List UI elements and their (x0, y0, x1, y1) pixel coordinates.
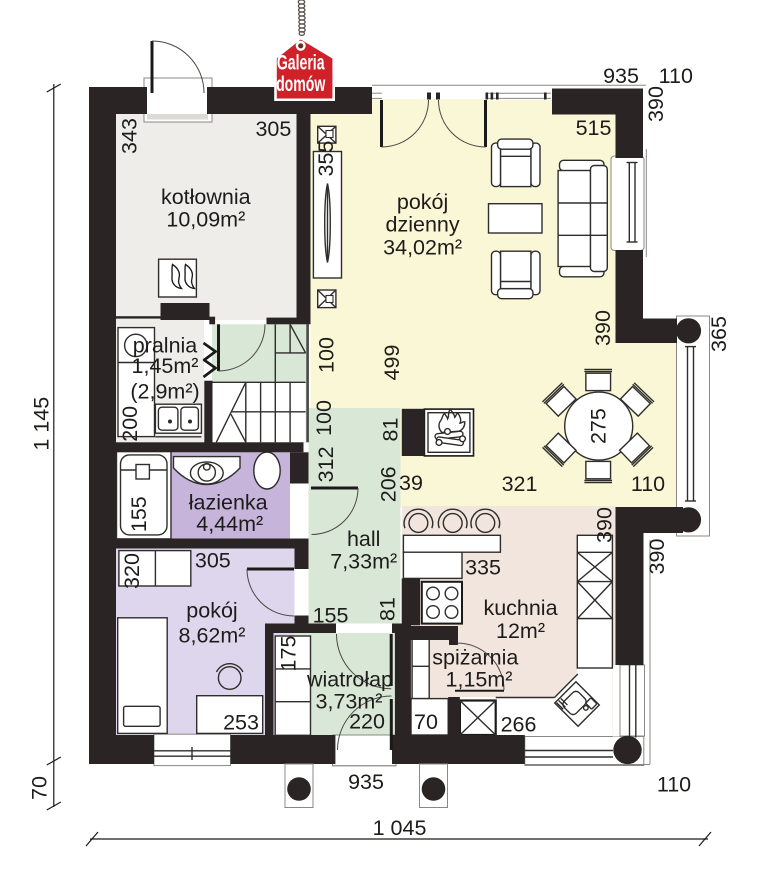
svg-text:34,02m²: 34,02m² (383, 236, 462, 260)
svg-text:312: 312 (314, 446, 338, 482)
svg-text:4,44m²: 4,44m² (196, 512, 263, 536)
svg-text:70: 70 (414, 710, 438, 734)
svg-text:hall: hall (347, 527, 380, 551)
svg-text:10,09m²: 10,09m² (166, 208, 245, 232)
svg-text:spiżarnia: spiżarnia (432, 646, 518, 670)
svg-text:343: 343 (118, 118, 142, 154)
svg-text:275: 275 (587, 408, 611, 444)
svg-text:81: 81 (376, 597, 400, 621)
svg-text:390: 390 (645, 539, 669, 575)
svg-text:dzienny: dzienny (386, 213, 460, 237)
svg-text:1 145: 1 145 (30, 397, 54, 451)
svg-text:499: 499 (380, 345, 404, 381)
svg-text:Galeria: Galeria (277, 51, 326, 74)
svg-text:320: 320 (120, 553, 144, 589)
svg-text:206: 206 (376, 466, 400, 502)
svg-text:110: 110 (659, 64, 693, 88)
svg-text:wiatrołap: wiatrołap (306, 668, 393, 692)
svg-text:935: 935 (603, 64, 639, 88)
svg-text:110: 110 (657, 773, 691, 797)
svg-text:321: 321 (502, 472, 538, 496)
svg-text:70: 70 (28, 776, 52, 800)
svg-text:domów: domów (276, 72, 325, 95)
svg-text:266: 266 (501, 712, 537, 736)
svg-text:175: 175 (277, 636, 301, 672)
svg-text:12m²: 12m² (496, 619, 545, 643)
svg-text:8,62m²: 8,62m² (179, 624, 246, 648)
svg-text:365: 365 (707, 316, 731, 352)
svg-text:7,33m²: 7,33m² (330, 550, 397, 574)
svg-text:81: 81 (379, 418, 403, 442)
svg-text:200: 200 (118, 406, 142, 442)
svg-text:110: 110 (631, 472, 665, 496)
svg-text:pokój: pokój (186, 599, 237, 623)
svg-text:łazienka: łazienka (189, 491, 268, 515)
svg-text:305: 305 (195, 549, 231, 573)
svg-text:355: 355 (314, 141, 338, 177)
svg-text:253: 253 (223, 710, 259, 734)
svg-text:kuchnia: kuchnia (483, 596, 557, 620)
svg-text:1 045: 1 045 (373, 816, 427, 840)
svg-text:305: 305 (255, 117, 291, 141)
svg-text:155: 155 (127, 496, 151, 532)
svg-text:kotłownia: kotłownia (161, 185, 251, 209)
svg-text:390: 390 (591, 310, 615, 346)
svg-text:100: 100 (312, 400, 336, 436)
svg-text:(2,9m²): (2,9m²) (130, 380, 199, 404)
svg-text:220: 220 (349, 710, 385, 734)
svg-text:39: 39 (399, 471, 423, 495)
svg-text:1,45m²: 1,45m² (132, 354, 199, 378)
svg-text:335: 335 (465, 556, 501, 580)
svg-text:935: 935 (348, 770, 384, 794)
svg-text:515: 515 (576, 116, 612, 140)
svg-text:pokój: pokój (397, 190, 448, 214)
svg-text:1,15m²: 1,15m² (446, 667, 513, 691)
svg-text:100: 100 (315, 337, 339, 373)
svg-text:390: 390 (644, 86, 668, 122)
svg-text:155: 155 (313, 604, 349, 628)
svg-text:390: 390 (593, 507, 617, 543)
